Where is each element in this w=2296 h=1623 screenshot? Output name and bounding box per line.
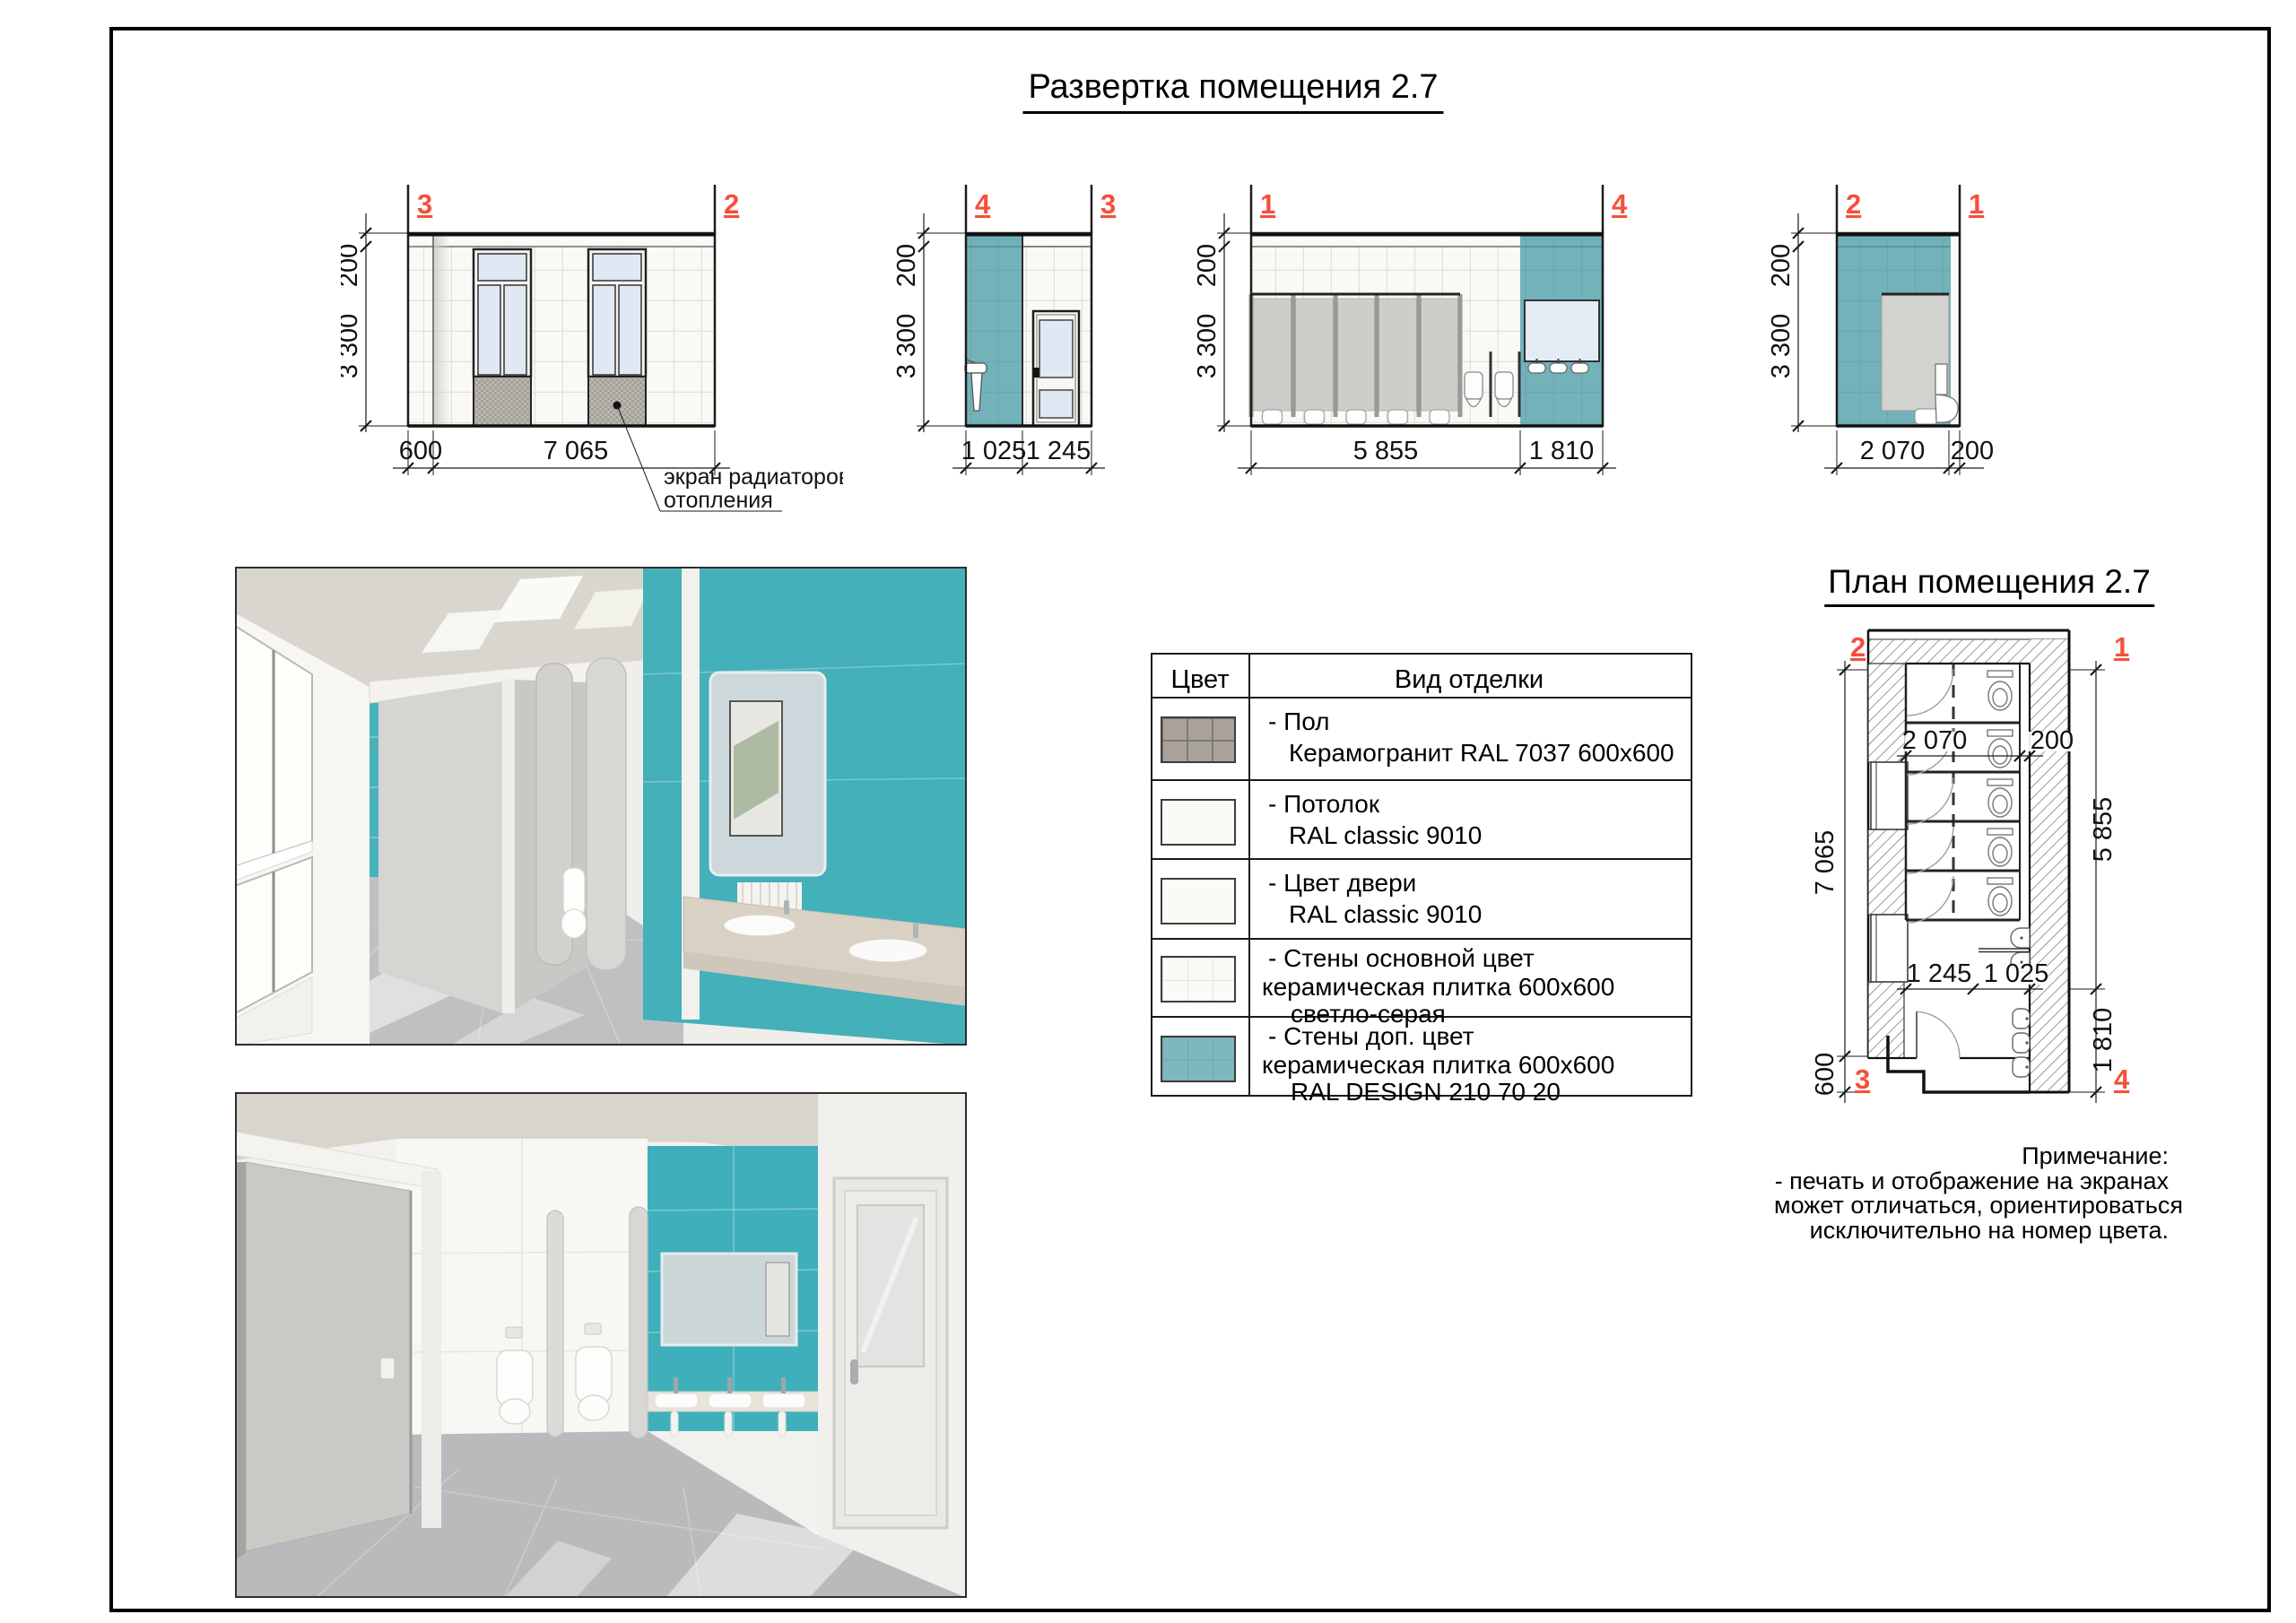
walls: [1868, 630, 2069, 1092]
dim-label: 3 300: [1767, 314, 1796, 379]
table-cell: Керамогранит RAL 7037 600x600: [1289, 740, 1674, 767]
section-marker: 2: [1846, 188, 1861, 220]
mirror: [710, 673, 825, 875]
dim-label: 3 300: [341, 314, 363, 379]
render-photo-interior-1: [235, 567, 967, 1046]
callout-label: отопления: [664, 488, 773, 513]
urinal-screen: [630, 1207, 648, 1438]
window-niche: [1871, 762, 1908, 829]
faucet: [727, 1377, 732, 1393]
render-photo-interior-2: [235, 1092, 967, 1598]
stall-latch: [380, 1358, 395, 1379]
dim-label: 3 300: [1193, 314, 1222, 379]
section-marker: 1: [1969, 188, 1984, 220]
section-marker: 3: [1855, 1063, 1870, 1095]
dim-label: 7 065: [1812, 830, 1839, 896]
section-marker: 4: [1612, 188, 1628, 220]
dim-label: 200: [341, 244, 363, 287]
note-heading: Примечание:: [1774, 1144, 2169, 1169]
radiator-screen: [474, 377, 531, 426]
dim-label: 5 855: [1353, 437, 1419, 465]
swatch-floor-tile: [1161, 716, 1236, 763]
note-block: Примечание: - печать и отображение на эк…: [1774, 1144, 2169, 1243]
dim-label: 3 300: [892, 314, 921, 379]
dim-label: 1 245: [1026, 437, 1091, 465]
child-sink: [1915, 409, 1938, 424]
section-marker: 3: [1100, 188, 1116, 220]
dim-label: 600: [1812, 1053, 1839, 1096]
swatch-wall-main: [1161, 956, 1236, 1002]
faucet: [784, 900, 789, 915]
urinal-screen: [587, 658, 626, 970]
window: [588, 249, 646, 426]
section-marker: 4: [2114, 1063, 2130, 1095]
table-cell: - Потолок: [1268, 791, 1379, 818]
stall-block: [370, 660, 612, 1013]
drawing-sheet: { "sheet": { "title": "Развертка помещен…: [0, 0, 2296, 1623]
table-cell: - Стены основной цвет: [1268, 945, 1535, 972]
dim-label: 200: [892, 244, 921, 287]
table-cell: RAL DESIGN 210 70 20: [1291, 1079, 1561, 1106]
dim-label: 7 065: [544, 437, 609, 465]
stall: [235, 1132, 441, 1560]
dim-label: 600: [399, 437, 442, 465]
section-marker: 2: [1850, 631, 1865, 663]
section-lines: 3 2: [408, 185, 739, 233]
door: [1033, 311, 1079, 426]
table-cell: керамическая плитка 600x600: [1262, 1052, 1614, 1079]
dim-label: 2 070: [1902, 726, 1968, 755]
section-marker: 4: [975, 188, 991, 220]
table-cell: - Цвет двери: [1268, 870, 1416, 897]
plan-title: План помещения 2.7: [1824, 563, 2154, 607]
dim-label: 200: [1767, 244, 1796, 287]
entry-door-plan: [1917, 1011, 1960, 1058]
finish-table: Цвет Вид отделки - Пол Керамогранит RAL …: [1151, 653, 1692, 1097]
dim-label: 200: [1951, 437, 1994, 465]
floor-plan: 2 070 200 1 245 1 025 7 065 600 5 855 1 …: [1812, 619, 2233, 1184]
section-lines: 1 4: [1251, 185, 1628, 233]
elevation-2-1: 2 1 200 3 300 2 070 200: [1749, 179, 2027, 529]
faucet: [781, 1377, 786, 1393]
plan-dimensions: 2 070 200 1 245 1 025 7 065 600 5 855 1 …: [1812, 631, 2130, 1103]
section-lines: 4 3: [966, 185, 1116, 233]
section-marker: 1: [2114, 631, 2129, 663]
table-cell: - Пол: [1268, 708, 1330, 735]
wall-drawing: [1837, 233, 1960, 426]
dim-label: 1 245: [1907, 959, 1972, 988]
note-line: может отличаться, ориентироваться: [1774, 1193, 2169, 1219]
elevation-1-4: 1 4: [1193, 179, 1677, 529]
toilets-plan: [1987, 671, 2013, 916]
door-handle: [850, 1359, 858, 1384]
dim-label: 1 025: [961, 437, 1027, 465]
wall-sinks: [1528, 359, 1588, 373]
section-marker: 2: [724, 188, 739, 220]
dim-label: 1 025: [1984, 959, 2049, 988]
dim-label: 200: [2031, 726, 2074, 755]
dim-label: 200: [1193, 244, 1222, 287]
dim-label: 5 855: [2089, 797, 2118, 863]
window-niche: [1871, 915, 1908, 982]
door-handle: [1034, 368, 1039, 378]
table-header-color: Цвет: [1171, 665, 1230, 695]
wall-drawing: [408, 233, 715, 426]
table-cell: - Стены доп. цвет: [1268, 1023, 1474, 1050]
dim-label: 2 070: [1860, 437, 1926, 465]
table-cell: керамическая плитка 600x600: [1262, 974, 1614, 1001]
wall-drawing: [1249, 233, 1604, 426]
table-column-divider: [1248, 655, 1250, 1095]
wall-drawing: [965, 233, 1091, 426]
table-cell: RAL classic 9010: [1289, 901, 1482, 928]
toilet-stalls: [1249, 294, 1463, 424]
swatch-door-color: [1161, 878, 1236, 924]
section-marker: 3: [417, 188, 432, 220]
section-marker: 1: [1260, 188, 1275, 220]
mirror: [662, 1254, 796, 1345]
dim-label: 1 810: [1529, 437, 1595, 465]
page-title: Развертка помещения 2.7: [1022, 68, 1443, 114]
faucet: [913, 924, 918, 938]
urinal-screen: [547, 1211, 563, 1436]
section-lines: 2 1: [1837, 185, 1984, 233]
table-header-finish: Вид отделки: [1395, 665, 1544, 695]
elevation-4-3: 4 3 200 3 300 1 025: [888, 179, 1139, 529]
window: [474, 249, 531, 426]
note-line: - печать и отображение на экранах: [1774, 1169, 2169, 1194]
table-cell: RAL classic 9010: [1289, 822, 1482, 849]
sinks-plan: [2013, 1009, 2030, 1077]
note-line: исключительно на номер цвета.: [1774, 1219, 2169, 1244]
mirror: [1525, 300, 1599, 361]
swatch-wall-accent: [1161, 1036, 1236, 1082]
faucet: [674, 1377, 678, 1393]
elevation-3-2: 3 2 экран радиаторов: [341, 179, 843, 529]
swatch-ceiling: [1161, 799, 1236, 846]
entrance-door: [834, 1178, 947, 1528]
